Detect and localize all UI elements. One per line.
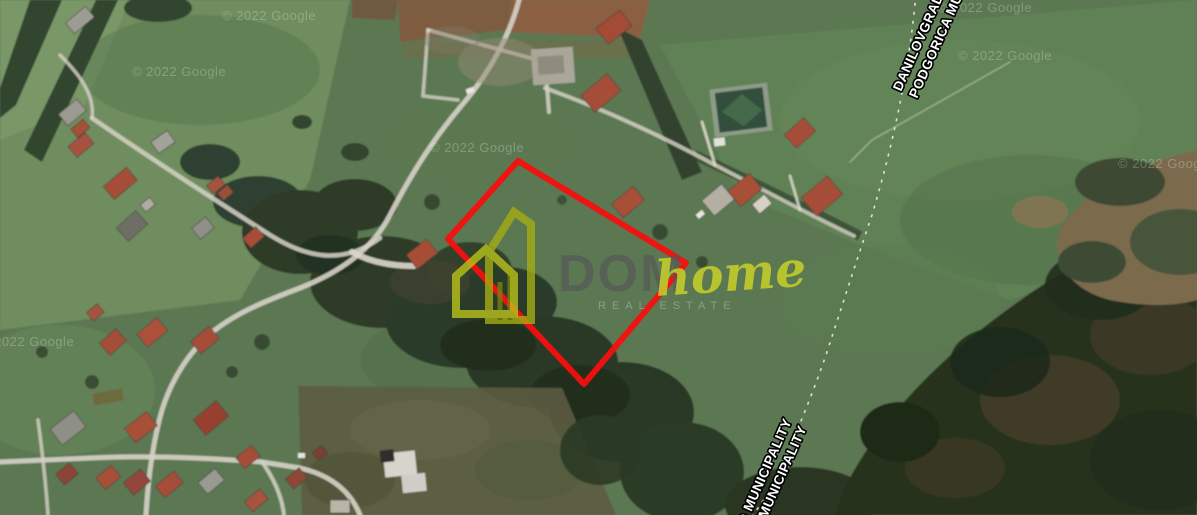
satellite-map-image: © 2022 Google © 2022 Google © 2022 Googl…: [0, 0, 1197, 515]
google-watermark: © 2022 Google: [958, 48, 1052, 63]
google-watermark: © 2022 Google: [430, 140, 524, 155]
google-watermark: © 2022 Google: [222, 8, 316, 23]
google-watermark: © 2022 Google: [132, 64, 226, 79]
google-watermark: © 2022 Google: [0, 334, 74, 349]
google-watermark: © 2022 Google: [1118, 156, 1197, 171]
logo-text-subtitle: REAL ESTATE: [598, 300, 737, 312]
logo-text-home: home: [653, 240, 808, 308]
